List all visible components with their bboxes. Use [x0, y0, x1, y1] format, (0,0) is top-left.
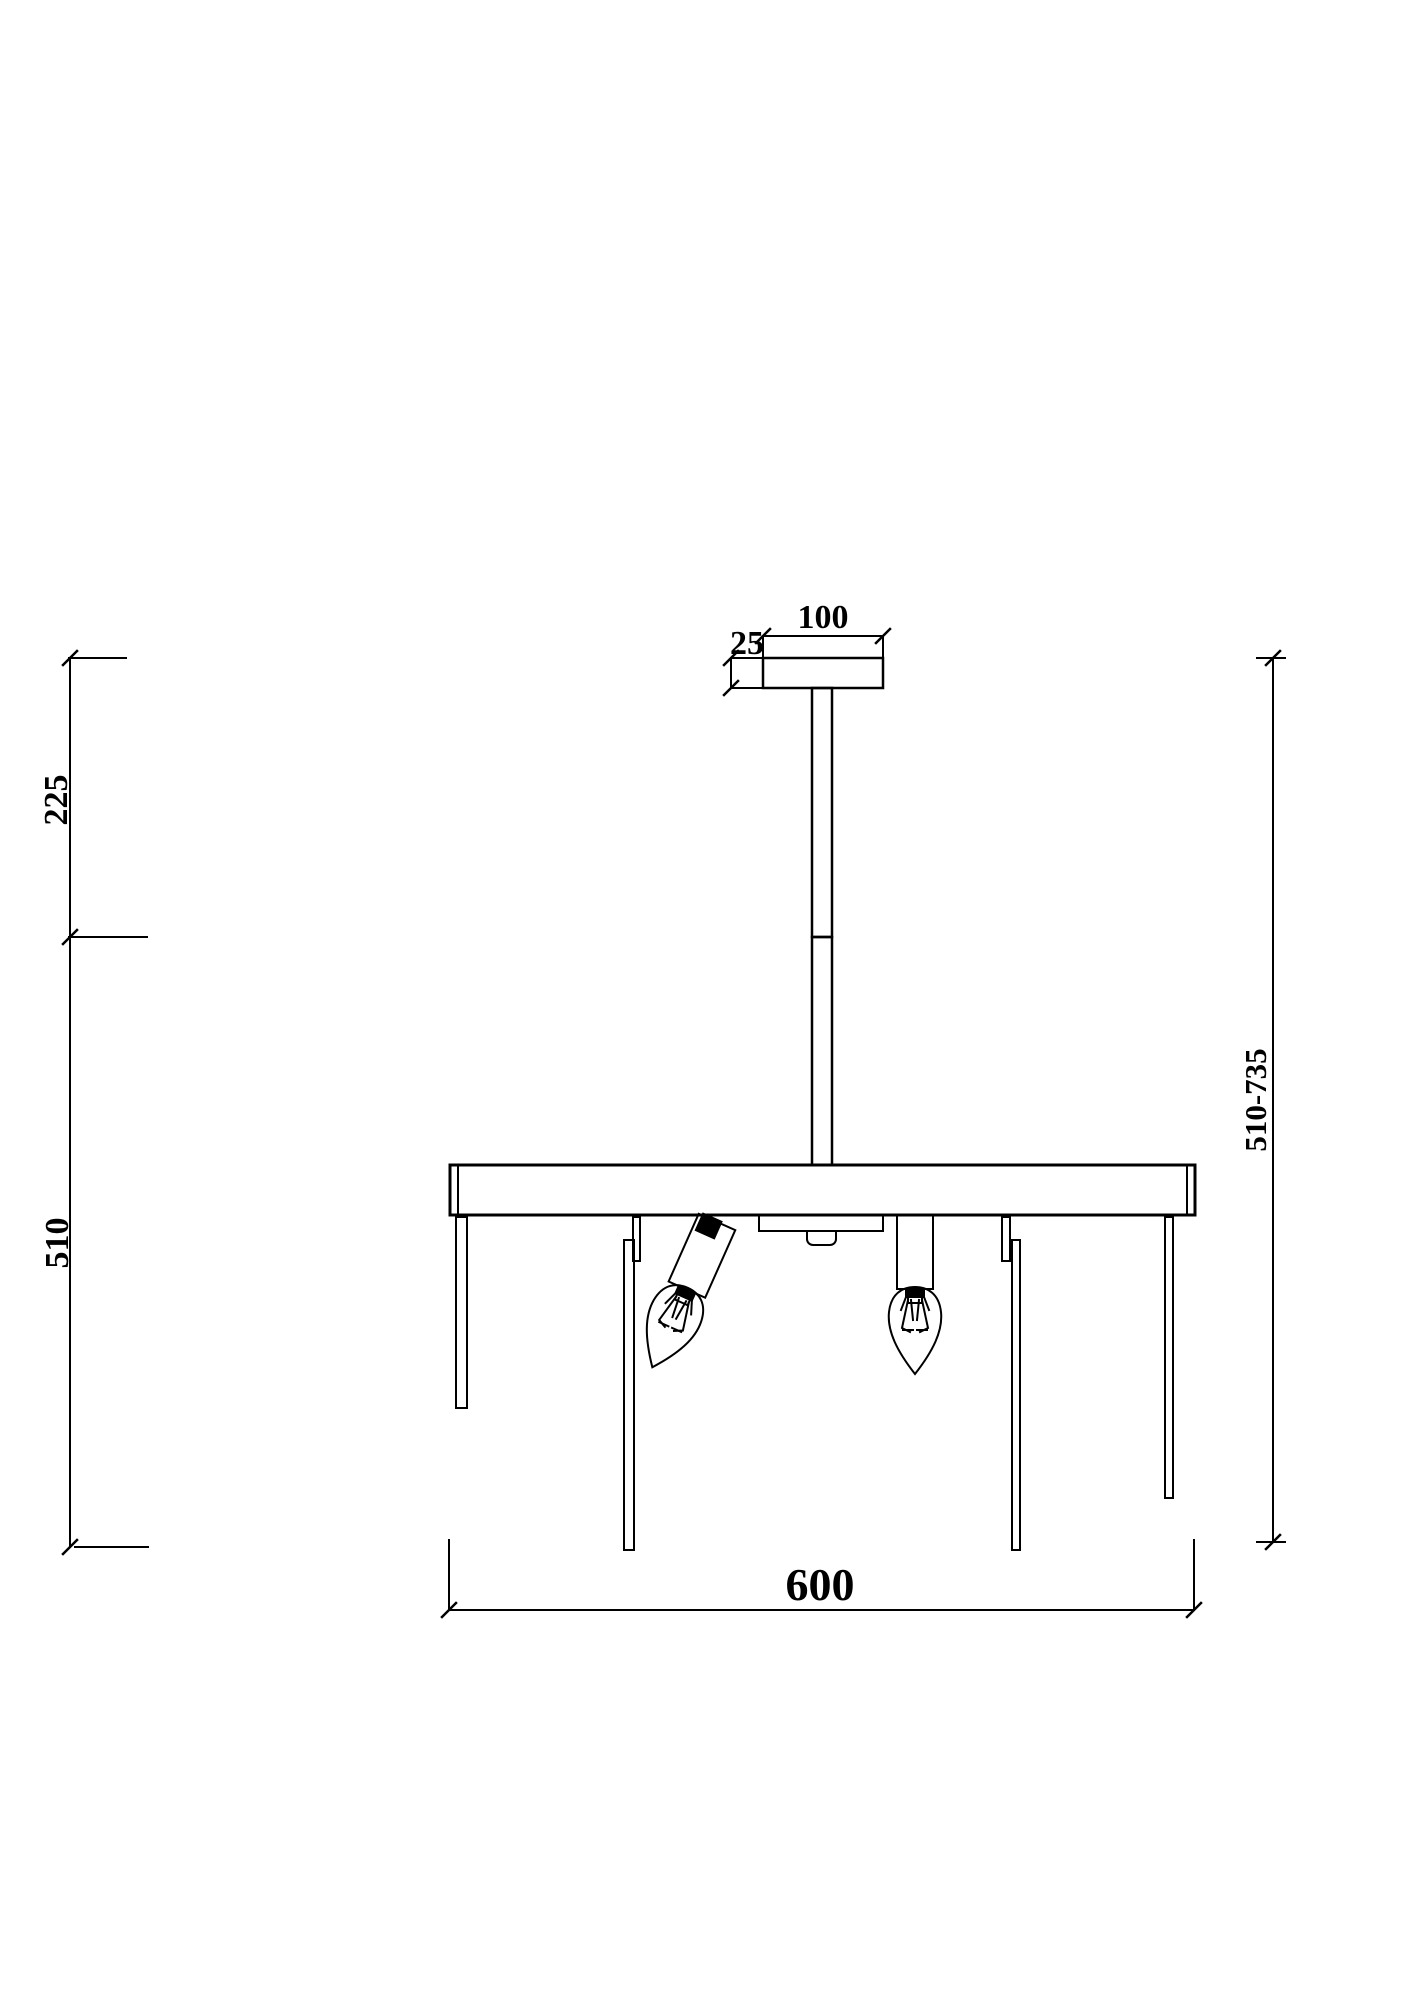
- hanging-rod-right-outer: [1165, 1217, 1173, 1498]
- dim-label-body-drop: 510: [38, 1203, 78, 1283]
- dim-label-canopy-height: 25: [700, 624, 764, 664]
- stem-rod: [812, 688, 832, 1165]
- candle-socket-right: [897, 1215, 933, 1310]
- dim-label-canopy-width: 100: [770, 598, 876, 638]
- hanging-rod-left-outer: [456, 1217, 467, 1408]
- fixture-plate: [450, 1165, 1195, 1215]
- dim-label-overall-height: 510-735: [1236, 1020, 1276, 1180]
- candle-bulb-right: [889, 1287, 942, 1374]
- drawing-canvas: 100 25 225 510 510-735 600: [0, 0, 1413, 2000]
- plate-inner-shelf: [759, 1215, 883, 1245]
- candle-assembly-left: [222, 1209, 742, 2000]
- hanging-rod-right-long: [1012, 1240, 1020, 1550]
- canopy-outline: [763, 658, 883, 688]
- filament-support: [902, 1300, 928, 1332]
- hanging-rod-left-long: [624, 1240, 634, 1550]
- dim-label-upper-stem: 225: [37, 760, 77, 840]
- socket-mount-left: [696, 1214, 722, 1239]
- candle-bulb-left: [628, 1277, 711, 1378]
- hanging-rods: [456, 1217, 1173, 1550]
- hanging-rod-right-stub: [1002, 1217, 1010, 1261]
- dim-label-fixture-width: 600: [745, 1565, 895, 1605]
- lamp-technical-linework: [0, 0, 1413, 2000]
